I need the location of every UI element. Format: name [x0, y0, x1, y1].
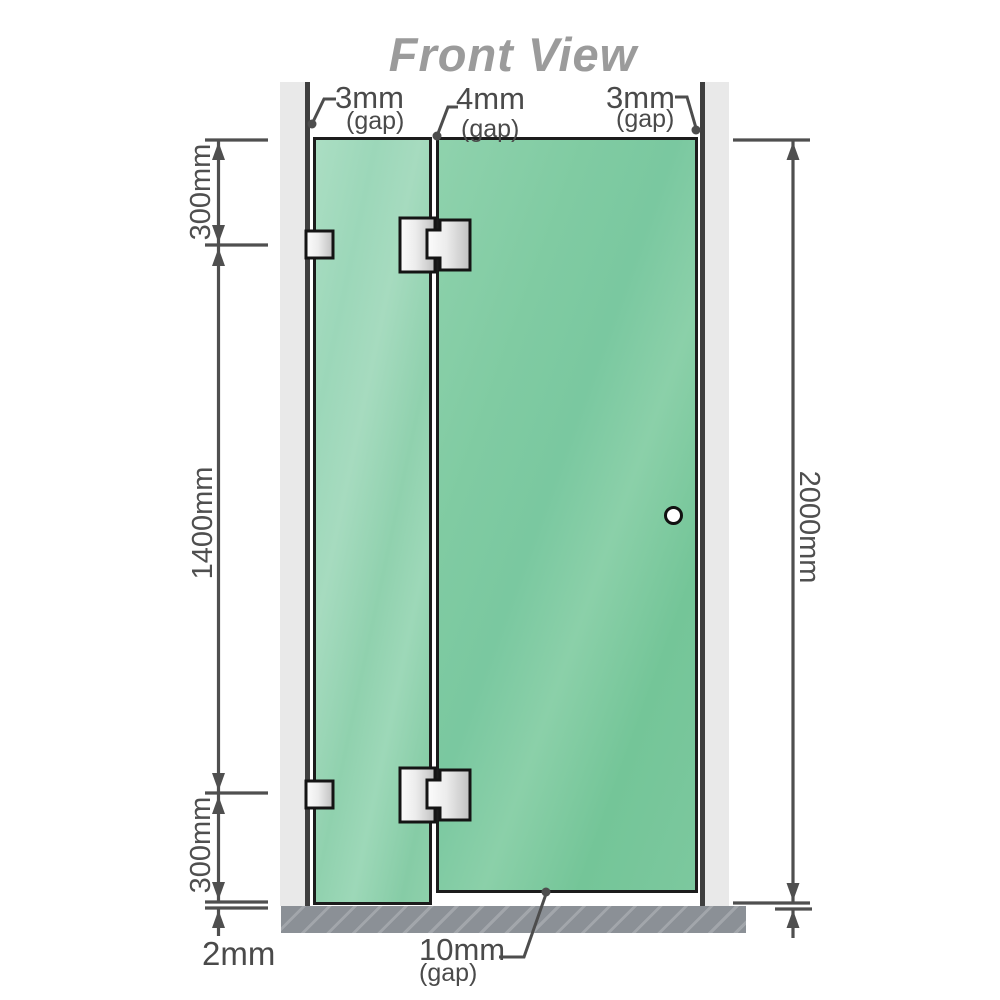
- door-handle-knob: [664, 506, 683, 525]
- label-segment-bottom: 300mm: [185, 765, 215, 925]
- diagram-title: Front View: [343, 27, 683, 82]
- door-glass-panel: [436, 137, 698, 893]
- label-segment-top: 300mm: [185, 112, 215, 272]
- label-gap-bottom-suffix: (gap): [419, 961, 477, 986]
- label-gap-top-left-suffix: (gap): [346, 109, 404, 134]
- left-wall: [280, 82, 306, 906]
- label-gap-top-middle-suffix: (gap): [461, 117, 519, 142]
- left-wall-edge: [305, 82, 310, 906]
- label-total-height: 2000mm: [795, 447, 825, 607]
- shower-screen-front-view-diagram: Front View: [0, 0, 1000, 1000]
- label-gap-top-middle-value: 4mm: [456, 83, 525, 114]
- label-gap-top-right-suffix: (gap): [616, 107, 674, 132]
- fixed-glass-panel: [313, 137, 432, 905]
- label-floor-gap: 2mm: [202, 937, 275, 970]
- floor-base: [281, 906, 746, 933]
- right-wall: [705, 82, 729, 906]
- label-segment-middle: 1400mm: [187, 443, 217, 603]
